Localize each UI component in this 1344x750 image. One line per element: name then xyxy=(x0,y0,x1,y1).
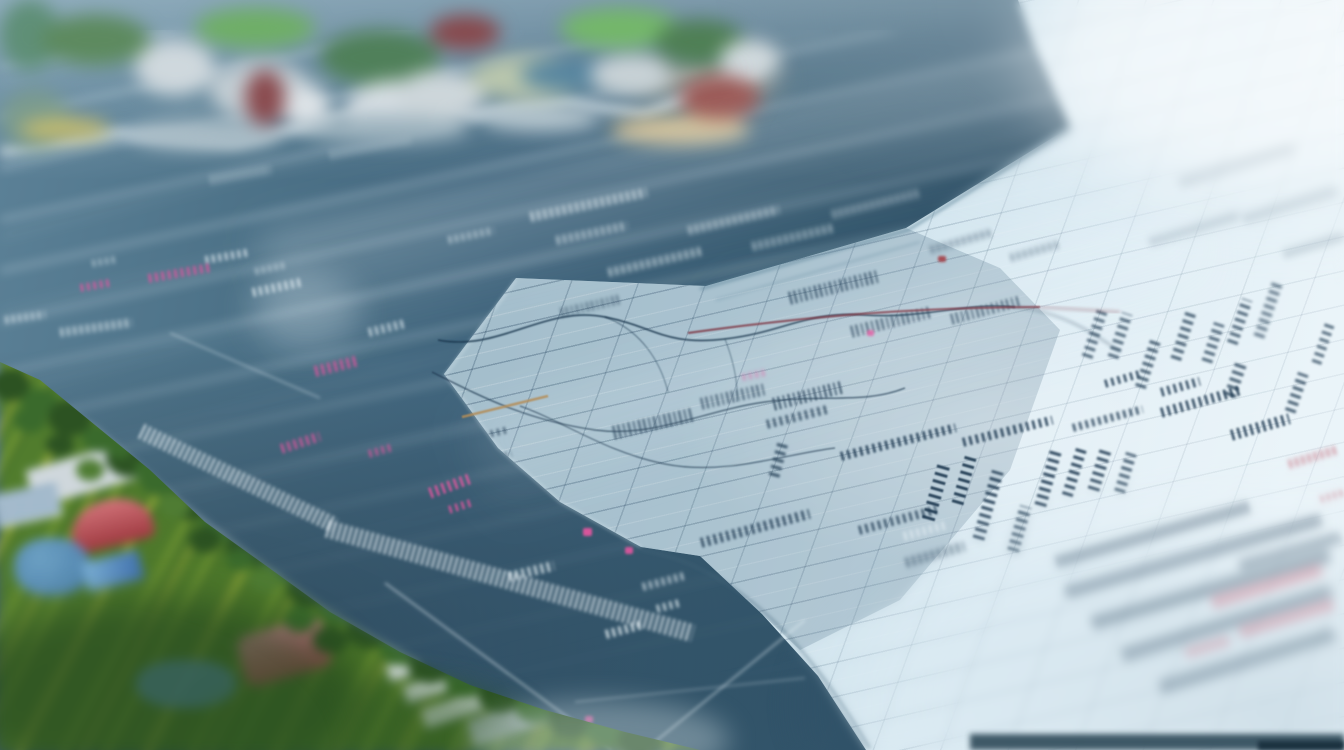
pink-marker-dot xyxy=(583,528,592,536)
city-blob xyxy=(480,105,600,131)
tree-clump xyxy=(76,459,104,481)
pink-marker-dot xyxy=(938,256,946,262)
pink-annotation xyxy=(80,279,111,292)
tree-clump xyxy=(46,434,74,456)
tree-clump xyxy=(312,626,348,655)
city-blob xyxy=(245,70,285,125)
city-blob xyxy=(610,115,750,145)
city-blob xyxy=(40,15,150,65)
city-blob xyxy=(20,118,110,140)
city-blob xyxy=(135,40,215,95)
tree-clump xyxy=(14,407,46,433)
pink-annotation xyxy=(148,263,211,283)
pink-annotation xyxy=(1240,599,1333,638)
tree-clump xyxy=(189,527,221,553)
pink-annotation xyxy=(1212,563,1323,608)
bottom-edge-shadow xyxy=(1258,741,1344,750)
pink-annotation xyxy=(280,432,321,454)
city-blob xyxy=(430,15,500,50)
pink-annotation xyxy=(368,443,395,458)
pink-annotation xyxy=(1288,446,1337,469)
city-blob xyxy=(300,115,470,143)
pink-annotation xyxy=(448,499,473,514)
city-blob xyxy=(680,75,760,120)
pink-annotation xyxy=(1186,635,1231,657)
tree-clump xyxy=(284,607,316,633)
pink-marker-dot xyxy=(625,547,633,554)
pink-annotation xyxy=(428,473,473,498)
pink-marker-dot xyxy=(867,330,874,336)
miniature-city xyxy=(0,0,800,190)
scene xyxy=(0,0,1344,750)
city-blob xyxy=(130,120,280,150)
city-blob xyxy=(195,8,315,48)
city-blob xyxy=(590,55,670,95)
pink-annotation xyxy=(742,369,767,381)
pink-annotation xyxy=(1320,490,1343,503)
city-blob xyxy=(720,40,780,80)
pink-annotation xyxy=(314,355,359,376)
